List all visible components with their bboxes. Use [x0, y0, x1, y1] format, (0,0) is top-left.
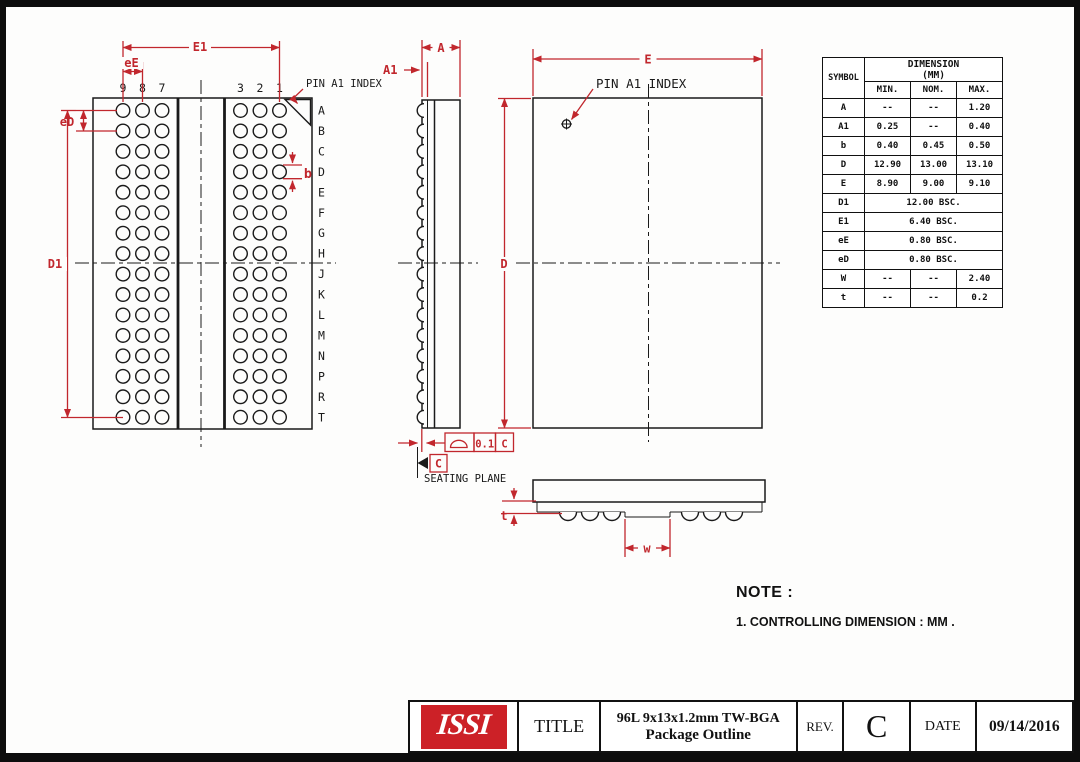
- note-item: 1. CONTROLLING DIMENSION : MM .: [736, 615, 955, 629]
- issi-logo: ISSI: [421, 705, 507, 749]
- dim-row: A10.25--0.40: [823, 118, 1003, 137]
- solder-ball: [155, 124, 169, 138]
- dim-label-t: t: [500, 509, 507, 523]
- solder-ball: [273, 226, 287, 240]
- solder-ball-side: [417, 124, 424, 138]
- dim-value: --: [865, 270, 911, 289]
- solder-ball: [253, 124, 267, 138]
- dim-symbol: W: [823, 270, 865, 289]
- solder-ball: [116, 308, 130, 322]
- solder-ball: [136, 226, 150, 240]
- solder-ball: [155, 247, 169, 261]
- row-label: A: [318, 104, 325, 118]
- solder-ball: [155, 206, 169, 220]
- solder-ball-side: [417, 104, 424, 118]
- dim-value: --: [865, 289, 911, 308]
- dim-value: --: [911, 118, 957, 137]
- solder-ball: [253, 410, 267, 424]
- dim-value-merged: 12.00 BSC.: [865, 194, 1003, 213]
- row-label: P: [318, 369, 325, 383]
- dim-value: 0.40: [865, 137, 911, 156]
- solder-ball: [273, 165, 287, 179]
- dim-value: 0.2: [957, 289, 1003, 308]
- solder-ball: [273, 145, 287, 159]
- solder-ball: [273, 186, 287, 200]
- solder-ball: [273, 288, 287, 302]
- solder-ball: [116, 104, 130, 118]
- bottom-view-outline: [75, 80, 336, 447]
- solder-ball: [136, 349, 150, 363]
- column-label: 2: [257, 81, 264, 95]
- dim-row: D112.00 BSC.: [823, 194, 1003, 213]
- top-view-dimensions: E D: [495, 49, 763, 428]
- row-label: F: [318, 206, 325, 220]
- solder-ball: [155, 226, 169, 240]
- solder-ball: [116, 288, 130, 302]
- top-view-outline: [516, 84, 780, 442]
- dim-label-w: w: [643, 542, 651, 556]
- solder-ball: [234, 267, 248, 281]
- solder-ball: [136, 206, 150, 220]
- dim-value: 12.90: [865, 156, 911, 175]
- solder-ball: [253, 104, 267, 118]
- row-label: J: [318, 267, 325, 281]
- title-block: ISSI TITLE 96L 9x13x1.2mm TW-BGA Package…: [408, 700, 1074, 753]
- dim-symbol: E1: [823, 213, 865, 232]
- dim-value: 9.00: [911, 175, 957, 194]
- solder-ball: [273, 370, 287, 384]
- solder-ball: [234, 349, 248, 363]
- dim-value: 0.25: [865, 118, 911, 137]
- dim-row: b0.400.450.50: [823, 137, 1003, 156]
- solder-ball: [116, 370, 130, 384]
- solder-ball: [234, 390, 248, 404]
- solder-ball: [234, 329, 248, 343]
- solder-ball: [136, 247, 150, 261]
- solder-ball: [253, 329, 267, 343]
- title-label-cell: TITLE: [519, 702, 601, 751]
- solder-ball: [136, 370, 150, 384]
- solder-ball: [234, 206, 248, 220]
- row-label: H: [318, 247, 325, 261]
- rev-label-cell: REV.: [798, 702, 845, 751]
- solder-ball: [155, 288, 169, 302]
- profile-view-outline: [533, 480, 765, 517]
- solder-ball: [136, 329, 150, 343]
- solder-ball: [136, 145, 150, 159]
- solder-ball: [155, 349, 169, 363]
- profile-view-balls: [560, 512, 743, 521]
- dimension-table: SYMBOL DIMENSION (MM) MIN.NOM.MAX. A----…: [822, 57, 1003, 308]
- row-label: L: [318, 308, 325, 322]
- solder-ball: [155, 145, 169, 159]
- table-col-header: MIN.: [865, 82, 911, 99]
- row-label: M: [318, 328, 325, 342]
- solder-ball: [155, 370, 169, 384]
- datum-label: C: [435, 457, 442, 471]
- solder-ball-side: [417, 349, 424, 363]
- table-col-header: NOM.: [911, 82, 957, 99]
- pin-a1-corner-triangle: [285, 100, 311, 126]
- row-label: C: [318, 144, 325, 158]
- solder-ball-profile: [726, 512, 743, 521]
- solder-ball: [253, 308, 267, 322]
- datum-triangle: [418, 457, 429, 469]
- dim-value: 0.50: [957, 137, 1003, 156]
- dim-value: --: [911, 289, 957, 308]
- solder-ball: [116, 349, 130, 363]
- solder-ball-side: [417, 329, 424, 343]
- dim-value: --: [911, 99, 957, 118]
- dim-row: eE0.80 BSC.: [823, 232, 1003, 251]
- solder-ball: [253, 186, 267, 200]
- solder-ball-side: [417, 370, 424, 384]
- solder-ball: [234, 410, 248, 424]
- solder-ball: [253, 206, 267, 220]
- dim-symbol: eE: [823, 232, 865, 251]
- solder-ball: [234, 308, 248, 322]
- solder-ball: [273, 247, 287, 261]
- solder-ball: [155, 104, 169, 118]
- dim-symbol: D1: [823, 194, 865, 213]
- solder-ball: [116, 329, 130, 343]
- logo-cell: ISSI: [410, 702, 519, 751]
- solder-ball: [234, 288, 248, 302]
- solder-ball: [253, 145, 267, 159]
- dim-symbol: D: [823, 156, 865, 175]
- row-labels: ABCDEFGHJKLMNPRT: [318, 104, 325, 425]
- dim-value: 13.10: [957, 156, 1003, 175]
- solder-ball: [253, 288, 267, 302]
- solder-ball: [253, 349, 267, 363]
- dim-value: --: [911, 270, 957, 289]
- page: { "colors": {"dimension_red": "#c1272d",…: [0, 0, 1080, 762]
- dim-value: 9.10: [957, 175, 1003, 194]
- solder-ball: [234, 247, 248, 261]
- solder-ball: [155, 165, 169, 179]
- column-label: 3: [237, 81, 244, 95]
- solder-ball: [234, 165, 248, 179]
- solder-ball-side: [417, 267, 424, 281]
- dim-value-merged: 0.80 BSC.: [865, 251, 1003, 270]
- issi-logo-text: ISSI: [435, 708, 492, 745]
- solder-ball-profile: [704, 512, 721, 521]
- solder-ball: [136, 165, 150, 179]
- solder-ball: [136, 267, 150, 281]
- flatness-datum-ref: C: [501, 439, 507, 451]
- table-col-header: MAX.: [957, 82, 1003, 99]
- solder-ball-side: [417, 226, 424, 240]
- dim-symbol: b: [823, 137, 865, 156]
- solder-ball: [155, 186, 169, 200]
- title-line1: 96L 9x13x1.2mm TW-BGA: [617, 711, 780, 727]
- solder-ball: [136, 308, 150, 322]
- solder-ball: [234, 186, 248, 200]
- solder-ball: [116, 206, 130, 220]
- solder-ball: [273, 329, 287, 343]
- dim-value-merged: 0.80 BSC.: [865, 232, 1003, 251]
- dim-symbol: E: [823, 175, 865, 194]
- solder-ball: [155, 410, 169, 424]
- dim-row: D12.9013.0013.10: [823, 156, 1003, 175]
- solder-ball-side: [417, 165, 424, 179]
- dim-value: 1.20: [957, 99, 1003, 118]
- solder-ball: [273, 308, 287, 322]
- dim-label-e1: E1: [193, 40, 207, 54]
- dim-row: W----2.40: [823, 270, 1003, 289]
- dim-symbol: A: [823, 99, 865, 118]
- solder-ball: [155, 267, 169, 281]
- row-label: R: [318, 390, 325, 404]
- row-label: N: [318, 349, 325, 363]
- solder-ball: [116, 267, 130, 281]
- solder-ball: [234, 104, 248, 118]
- dim-label-b: b: [304, 166, 312, 182]
- row-label: B: [318, 124, 325, 138]
- side-view-outline: [398, 100, 478, 428]
- solder-ball: [234, 145, 248, 159]
- note-block: NOTE : 1. CONTROLLING DIMENSION : MM .: [736, 584, 955, 629]
- dim-label-d: D: [500, 257, 507, 271]
- solder-ball: [155, 329, 169, 343]
- solder-ball: [253, 247, 267, 261]
- solder-ball: [253, 267, 267, 281]
- solder-ball-side: [417, 288, 424, 302]
- solder-ball-profile: [604, 512, 621, 521]
- row-label: D: [318, 165, 325, 179]
- flatness-tolerance: 0.1: [475, 439, 494, 451]
- dim-row: t----0.2: [823, 289, 1003, 308]
- solder-ball: [253, 370, 267, 384]
- dim-value: 13.00: [911, 156, 957, 175]
- dim-row: eD0.80 BSC.: [823, 251, 1003, 270]
- solder-ball: [136, 288, 150, 302]
- dim-value: 2.40: [957, 270, 1003, 289]
- dim-row: E16.40 BSC.: [823, 213, 1003, 232]
- profile-view-dimensions: t w: [500, 488, 670, 557]
- rev-value-cell: C: [844, 702, 911, 751]
- title-line2: Package Outline: [646, 727, 751, 743]
- column-label: 7: [159, 81, 166, 95]
- solder-ball: [116, 390, 130, 404]
- solder-ball: [234, 226, 248, 240]
- solder-ball: [273, 410, 287, 424]
- solder-ball: [116, 247, 130, 261]
- solder-ball-side: [417, 206, 424, 220]
- title-text-cell: 96L 9x13x1.2mm TW-BGA Package Outline: [601, 702, 798, 751]
- solder-ball: [136, 104, 150, 118]
- solder-ball-side: [417, 145, 424, 159]
- dim-value: 8.90: [865, 175, 911, 194]
- dim-row: E8.909.009.10: [823, 175, 1003, 194]
- solder-ball: [253, 226, 267, 240]
- solder-ball: [136, 410, 150, 424]
- solder-ball: [116, 124, 130, 138]
- solder-ball: [116, 165, 130, 179]
- solder-ball: [273, 267, 287, 281]
- dim-symbol: t: [823, 289, 865, 308]
- solder-ball: [116, 226, 130, 240]
- dim-label-d1: D1: [48, 257, 62, 271]
- row-label: T: [318, 410, 325, 424]
- solder-ball: [234, 124, 248, 138]
- solder-ball: [116, 186, 130, 200]
- solder-ball-side: [417, 247, 424, 261]
- solder-ball-side: [417, 308, 424, 322]
- solder-ball-side: [417, 410, 424, 424]
- dim-symbol: A1: [823, 118, 865, 137]
- side-view-balls: [417, 104, 424, 424]
- solder-ball: [253, 390, 267, 404]
- table-dimension-header: DIMENSION (MM): [865, 58, 1003, 82]
- pin-a1-index-label-bottom-view: PIN A1 INDEX: [306, 78, 383, 90]
- dim-label-a1: A1: [383, 63, 397, 77]
- solder-ball: [273, 390, 287, 404]
- dim-row: A----1.20: [823, 99, 1003, 118]
- pin-a1-index-label-top-view: PIN A1 INDEX: [596, 76, 687, 91]
- solder-ball: [116, 145, 130, 159]
- dim-symbol: eD: [823, 251, 865, 270]
- dim-value: --: [865, 99, 911, 118]
- solder-ball: [273, 124, 287, 138]
- solder-ball-profile: [560, 512, 577, 521]
- row-label: E: [318, 185, 325, 199]
- solder-ball-profile: [582, 512, 599, 521]
- solder-ball: [155, 308, 169, 322]
- dim-value-merged: 6.40 BSC.: [865, 213, 1003, 232]
- solder-ball: [136, 124, 150, 138]
- solder-ball: [253, 165, 267, 179]
- drawing-sheet: 987321 ABCDEFGHJKLMNPRT E1 eE eD: [6, 7, 1074, 753]
- dim-value: 0.45: [911, 137, 957, 156]
- solder-ball-profile: [682, 512, 699, 521]
- solder-ball: [273, 206, 287, 220]
- note-heading: NOTE :: [736, 584, 955, 602]
- solder-ball: [155, 390, 169, 404]
- row-label: K: [318, 288, 325, 302]
- solder-ball-side: [417, 390, 424, 404]
- solder-ball: [273, 349, 287, 363]
- solder-ball: [136, 186, 150, 200]
- flatness-callout: 0.1 C: [445, 433, 514, 452]
- solder-ball: [273, 104, 287, 118]
- dim-label-ee: eE: [124, 56, 138, 70]
- row-label: G: [318, 226, 325, 240]
- date-value-cell: 09/14/2016: [977, 702, 1072, 751]
- flatness-symbol: [451, 440, 468, 447]
- solder-ball: [234, 370, 248, 384]
- dim-label-e: E: [644, 53, 651, 67]
- solder-ball-side: [417, 186, 424, 200]
- dim-label-a: A: [437, 41, 445, 55]
- dim-value: 0.40: [957, 118, 1003, 137]
- table-body: A----1.20A10.25--0.40b0.400.450.50D12.90…: [823, 99, 1003, 308]
- date-label-cell: DATE: [911, 702, 977, 751]
- seating-plane-label: SEATING PLANE: [424, 473, 506, 485]
- solder-ball: [136, 390, 150, 404]
- table-symbol-header: SYMBOL: [823, 58, 865, 99]
